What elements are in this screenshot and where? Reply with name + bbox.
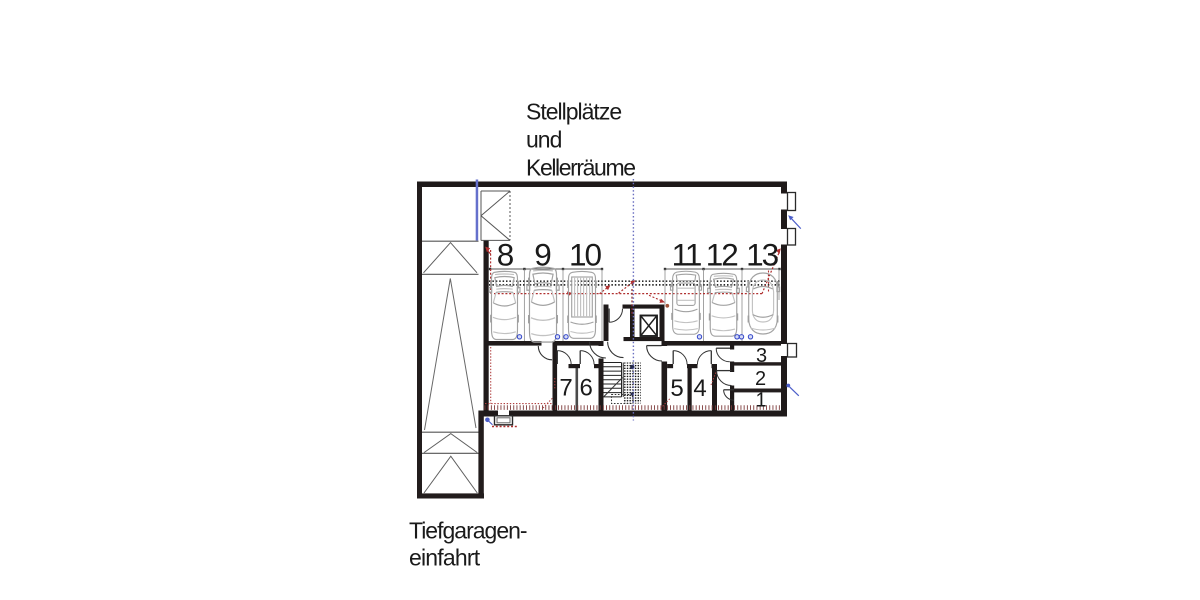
svg-text:Stellplätze: Stellplätze — [526, 99, 621, 125]
svg-text:4: 4 — [693, 375, 706, 402]
svg-text:10: 10 — [569, 237, 602, 273]
svg-text:1: 1 — [755, 389, 766, 411]
svg-text:11: 11 — [672, 237, 701, 273]
svg-text:Kellerräume: Kellerräume — [526, 155, 635, 181]
svg-text:einfahrt: einfahrt — [409, 545, 481, 571]
svg-text:8: 8 — [497, 237, 515, 273]
svg-text:7: 7 — [559, 375, 572, 402]
svg-text:5: 5 — [670, 375, 683, 402]
svg-text:3: 3 — [756, 345, 767, 367]
svg-text:Tiefgaragen-: Tiefgaragen- — [409, 518, 527, 544]
svg-text:9: 9 — [534, 237, 552, 273]
svg-text:12: 12 — [706, 237, 738, 273]
svg-text:2: 2 — [755, 368, 766, 390]
svg-text:6: 6 — [580, 375, 593, 402]
svg-text:und: und — [526, 127, 562, 153]
svg-text:13: 13 — [746, 237, 779, 273]
